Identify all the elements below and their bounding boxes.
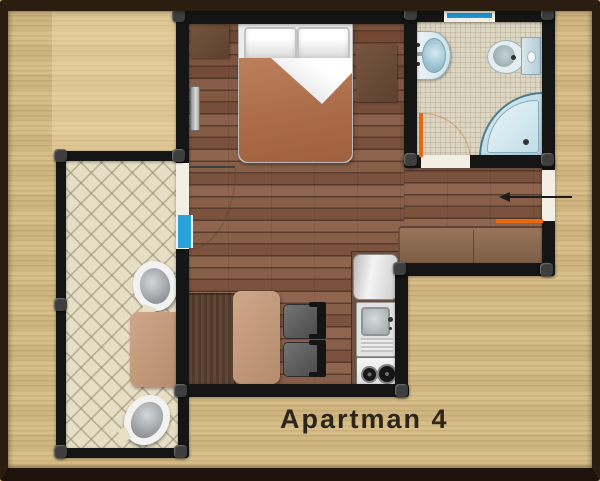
- bathroom-door-opening: [421, 155, 470, 168]
- corner-post: [174, 384, 187, 397]
- bed-blanket: [239, 58, 352, 162]
- faucet-dot: [388, 317, 393, 322]
- wall-top: [176, 11, 417, 24]
- drainboard: [361, 338, 393, 352]
- bathroom-window-glass: [447, 13, 492, 18]
- plan-caption: Apartman 4: [280, 404, 449, 435]
- balcony-wall-bottom: [56, 448, 189, 458]
- dining-chair-1: [283, 302, 326, 339]
- radiator: [190, 86, 200, 131]
- chair-backrest: [317, 340, 326, 377]
- nightstand-right: [356, 44, 397, 102]
- bench-wardrobe: [187, 293, 236, 388]
- chair-cushion: [137, 265, 174, 306]
- double-bed: [238, 22, 353, 163]
- chair-arm: [309, 302, 319, 307]
- blanket-fold: [271, 58, 352, 104]
- toilet-bowl: [487, 40, 525, 74]
- sofa-cushion-seam: [473, 230, 474, 265]
- corner-post: [172, 149, 185, 162]
- burner-left: [361, 366, 378, 383]
- corner-post: [54, 149, 67, 162]
- corner-post: [404, 153, 417, 166]
- wall-right-section-bottom: [395, 263, 555, 276]
- dining-table: [233, 291, 280, 384]
- balcony-table: [130, 312, 181, 387]
- corner-post: [393, 262, 406, 275]
- dining-chair-2: [283, 340, 326, 377]
- balcony-door-glazing: [176, 215, 193, 248]
- chair-backrest: [317, 302, 326, 339]
- corner-post: [541, 153, 554, 166]
- toilet-drain: [511, 55, 516, 60]
- bathroom-door-leaf: [419, 113, 423, 157]
- balcony-door-leaf: [189, 166, 235, 168]
- washbasin-bowl: [422, 38, 446, 73]
- corner-post: [395, 384, 408, 397]
- wall-right: [542, 9, 555, 276]
- sink-basin: [361, 307, 390, 336]
- flush-button: [527, 51, 536, 63]
- refrigerator: [353, 254, 398, 300]
- shower-drain: [523, 139, 529, 145]
- corner-post: [540, 263, 553, 276]
- entrance-arrow-icon: [507, 196, 572, 198]
- chair-arm: [309, 340, 319, 345]
- corner-post: [54, 298, 67, 311]
- chair-arm: [309, 334, 319, 339]
- kitchen-sink-unit: [356, 302, 398, 357]
- wall-bottom-main: [176, 384, 409, 397]
- balcony-wall-top: [56, 151, 189, 161]
- entrance-door-leaf: [496, 219, 543, 223]
- burner-right: [377, 364, 397, 384]
- corner-post: [174, 445, 187, 458]
- toilet-tank: [521, 37, 541, 75]
- chair-arm: [309, 372, 319, 377]
- corner-post: [404, 7, 417, 20]
- corner-post: [541, 7, 554, 20]
- bathroom-wall-left: [404, 9, 417, 168]
- entrance-arrow-head-icon: [499, 192, 510, 202]
- nightstand-left: [190, 24, 229, 58]
- background-light-band: [52, 12, 178, 153]
- floorplan-image: Apartman 4: [0, 0, 600, 481]
- drain-dot: [389, 327, 392, 330]
- wall-kitchen-right: [395, 263, 408, 397]
- corner-post: [172, 9, 185, 22]
- corner-post: [54, 445, 67, 458]
